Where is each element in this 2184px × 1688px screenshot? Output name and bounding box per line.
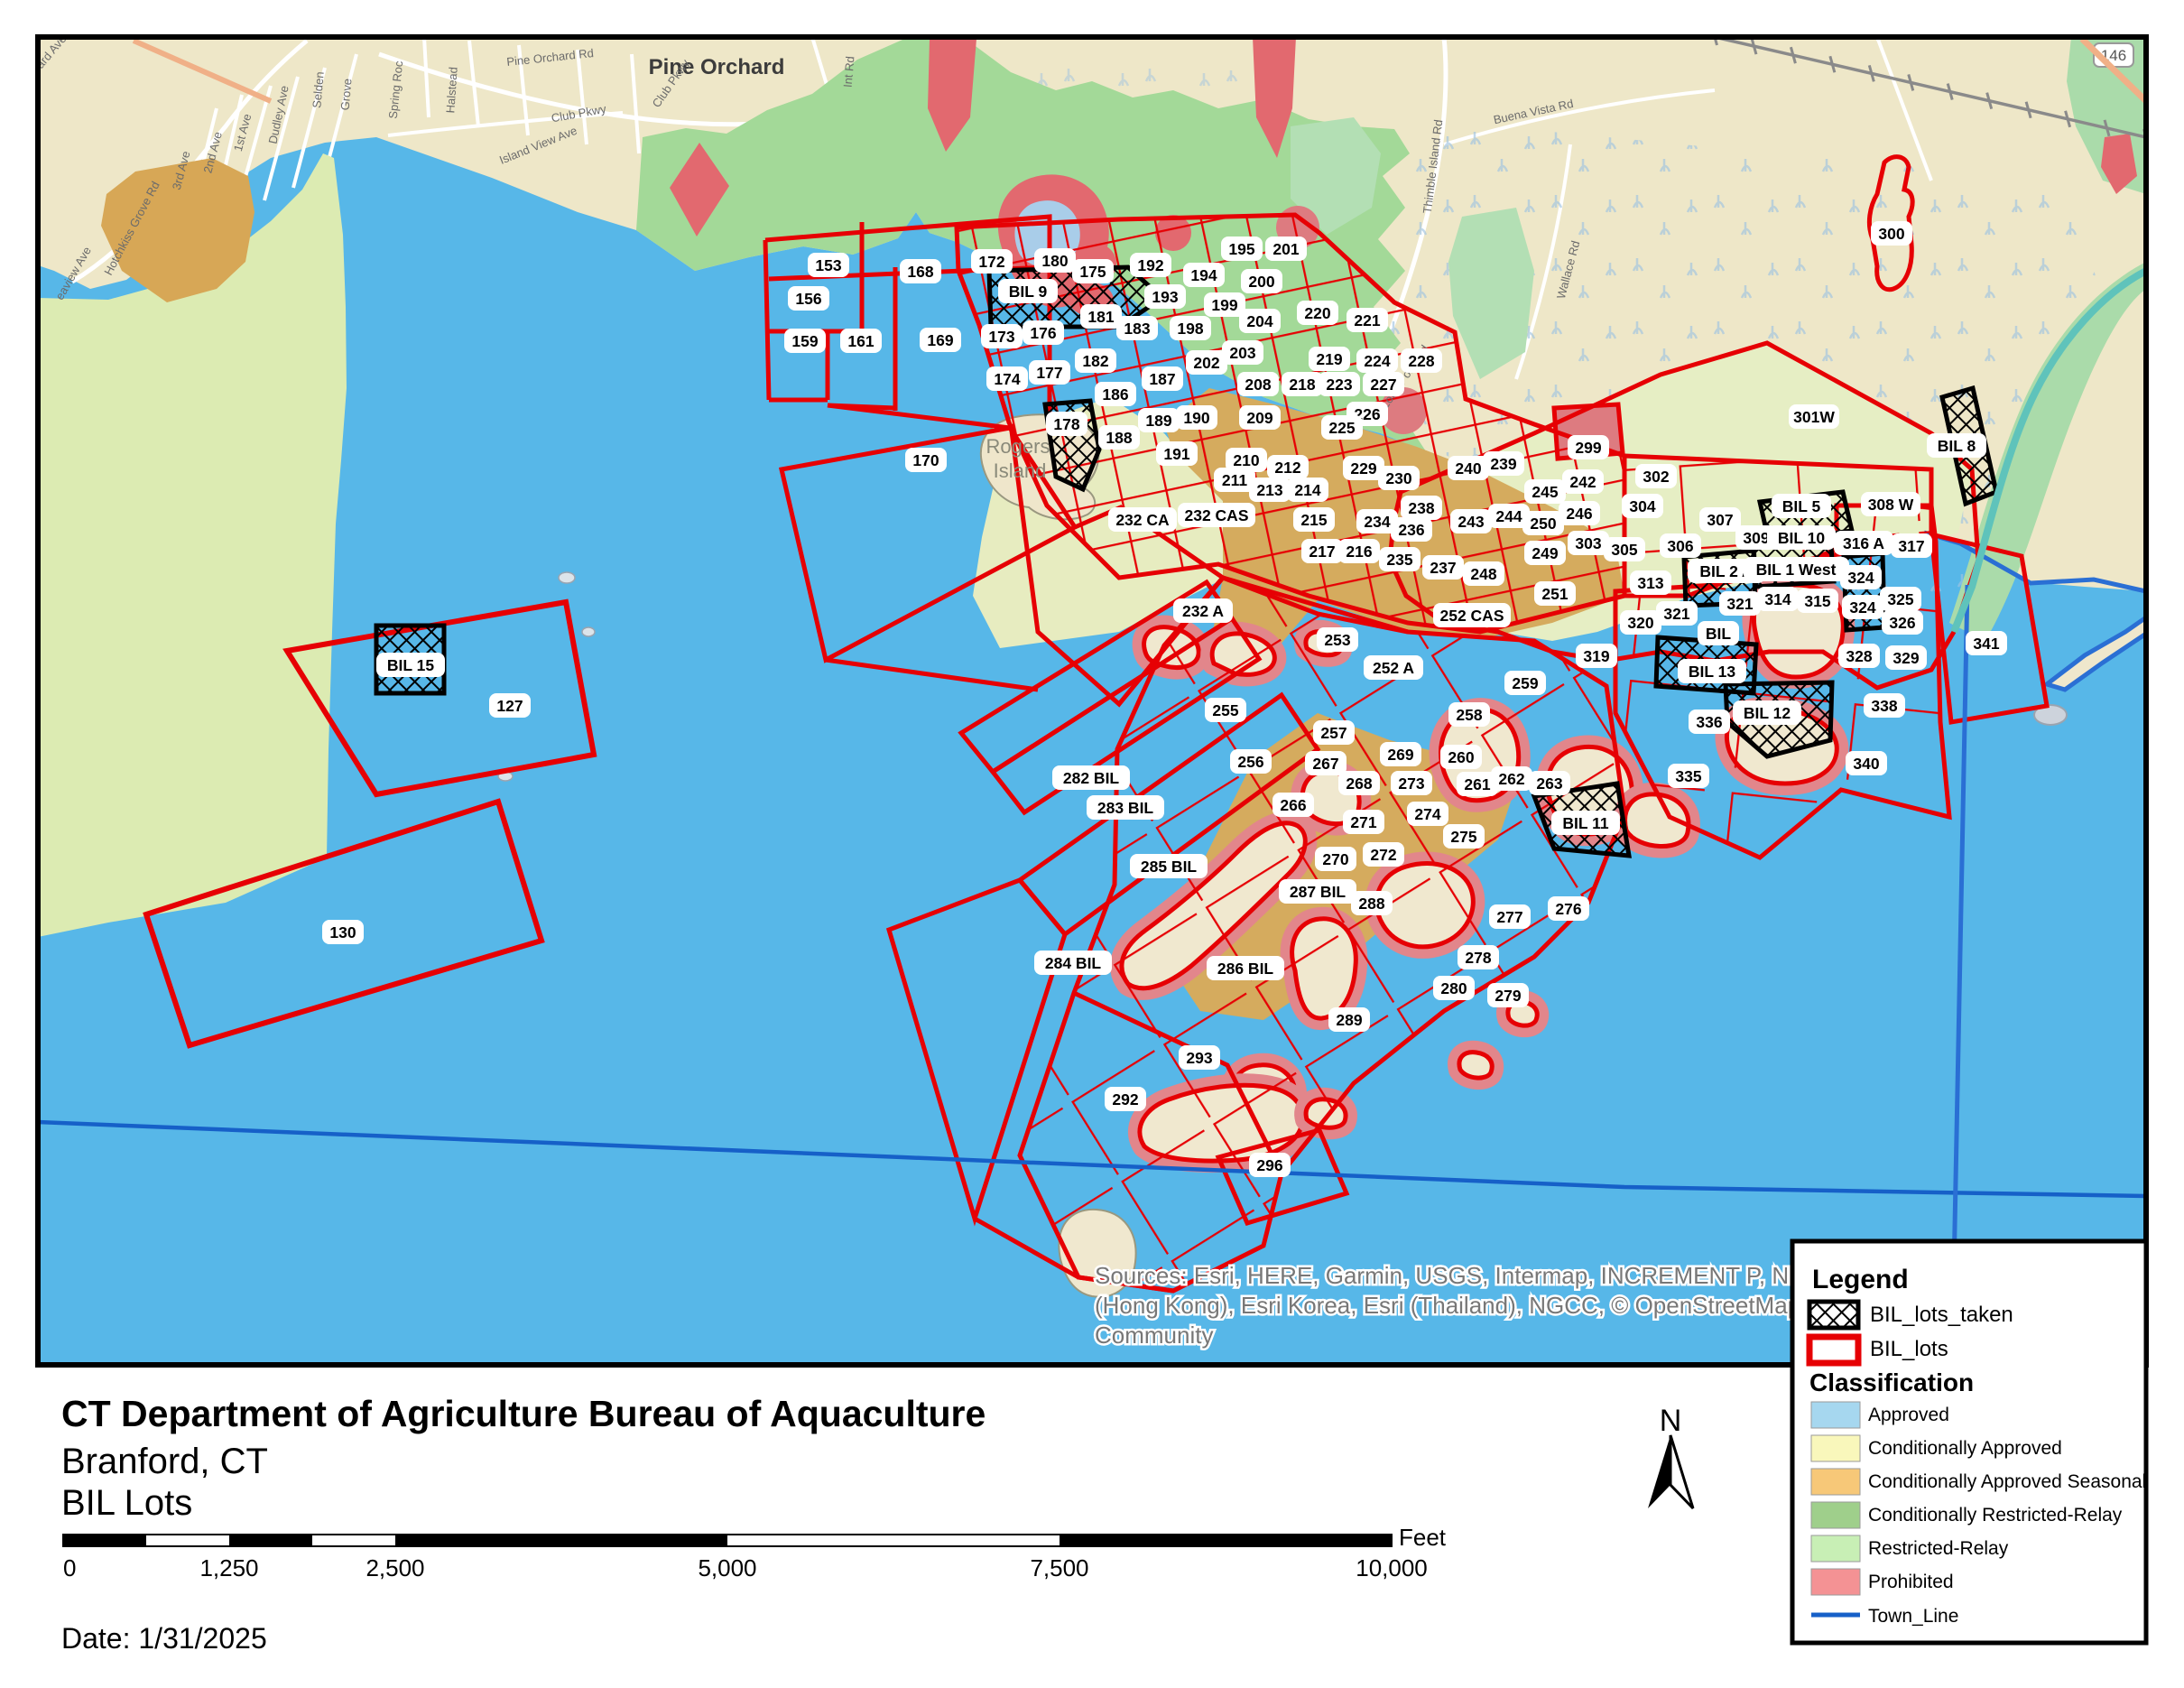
svg-text:279: 279	[1495, 987, 1521, 1005]
svg-text:Community: Community	[1095, 1322, 1213, 1349]
svg-text:256: 256	[1237, 753, 1263, 771]
svg-text:(Hong Kong), Esri Korea, Esri: (Hong Kong), Esri Korea, Esri (Thailand)…	[1095, 1292, 1845, 1319]
svg-text:BIL 1 West: BIL 1 West	[1756, 561, 1837, 579]
svg-text:219: 219	[1316, 350, 1342, 368]
svg-text:201: 201	[1272, 240, 1299, 258]
svg-text:188: 188	[1106, 429, 1132, 447]
svg-text:315: 315	[1804, 592, 1830, 610]
svg-text:313: 313	[1637, 574, 1663, 592]
svg-text:293: 293	[1186, 1049, 1212, 1067]
svg-text:341: 341	[1973, 635, 1999, 653]
svg-text:253: 253	[1324, 631, 1350, 649]
svg-text:325: 325	[1887, 590, 1913, 608]
svg-text:221: 221	[1354, 311, 1380, 329]
svg-text:268: 268	[1346, 774, 1372, 793]
svg-text:187: 187	[1149, 370, 1175, 388]
svg-text:Conditionally Approved: Conditionally Approved	[1868, 1438, 2062, 1459]
svg-text:285 BIL: 285 BIL	[1141, 858, 1198, 876]
svg-text:224: 224	[1364, 352, 1390, 370]
svg-text:216: 216	[1346, 543, 1372, 561]
svg-text:274: 274	[1414, 805, 1440, 823]
svg-text:243: 243	[1458, 513, 1484, 531]
svg-text:195: 195	[1228, 240, 1254, 258]
svg-text:303: 303	[1575, 534, 1601, 552]
svg-text:317: 317	[1898, 537, 1924, 555]
svg-text:299: 299	[1575, 439, 1601, 457]
svg-text:192: 192	[1137, 256, 1163, 274]
svg-text:Town_Line: Town_Line	[1868, 1606, 1958, 1627]
svg-text:BIL_lots: BIL_lots	[1870, 1337, 1948, 1361]
svg-text:305: 305	[1611, 541, 1637, 559]
svg-text:213: 213	[1256, 481, 1282, 499]
svg-text:250: 250	[1530, 515, 1556, 533]
svg-text:251: 251	[1541, 585, 1568, 603]
svg-text:296: 296	[1256, 1156, 1282, 1174]
svg-text:BIL 8: BIL 8	[1938, 437, 1976, 455]
svg-text:289: 289	[1336, 1011, 1362, 1029]
svg-text:304: 304	[1629, 497, 1655, 515]
svg-text:324: 324	[1847, 569, 1874, 587]
svg-text:316 A: 316 A	[1843, 534, 1884, 552]
svg-text:199: 199	[1211, 296, 1237, 314]
svg-text:288: 288	[1358, 895, 1384, 913]
svg-text:BIL_lots_taken: BIL_lots_taken	[1870, 1303, 2013, 1327]
svg-text:BIL: BIL	[1706, 625, 1732, 643]
svg-text:Feet: Feet	[1399, 1524, 1447, 1551]
svg-text:212: 212	[1274, 459, 1300, 477]
svg-text:200: 200	[1248, 273, 1274, 291]
svg-text:181: 181	[1087, 308, 1114, 326]
svg-text:232 CA: 232 CA	[1115, 511, 1170, 529]
svg-text:228: 228	[1408, 352, 1434, 370]
svg-text:232 A: 232 A	[1182, 602, 1224, 620]
svg-text:N: N	[1660, 1404, 1682, 1438]
svg-text:245: 245	[1532, 483, 1558, 501]
svg-text:194: 194	[1190, 266, 1217, 284]
svg-text:159: 159	[791, 332, 818, 350]
svg-text:220: 220	[1304, 304, 1330, 322]
svg-text:329: 329	[1892, 649, 1919, 667]
svg-text:300: 300	[1878, 225, 1904, 243]
svg-text:252 CAS: 252 CAS	[1439, 607, 1504, 625]
svg-text:Conditionally Approved Seasona: Conditionally Approved Seasonal	[1868, 1471, 2146, 1492]
svg-text:CT Department of Agriculture B: CT Department of Agriculture Bureau of A…	[61, 1393, 986, 1434]
svg-text:238: 238	[1408, 499, 1434, 517]
svg-text:276: 276	[1555, 900, 1581, 918]
svg-text:153: 153	[815, 256, 841, 274]
svg-text:183: 183	[1124, 320, 1150, 338]
svg-text:1,250: 1,250	[199, 1554, 258, 1581]
svg-text:Conditionally Restricted-Relay: Conditionally Restricted-Relay	[1868, 1505, 2123, 1526]
svg-text:5,000: 5,000	[698, 1554, 756, 1581]
svg-text:282 BIL: 282 BIL	[1063, 769, 1120, 787]
svg-text:287 BIL: 287 BIL	[1290, 883, 1346, 901]
svg-text:Int Rd: Int Rd	[841, 56, 857, 88]
svg-text:326: 326	[1889, 614, 1915, 632]
svg-text:BIL 11: BIL 11	[1562, 814, 1609, 832]
svg-text:130: 130	[329, 923, 356, 941]
svg-text:Restricted-Relay: Restricted-Relay	[1868, 1538, 2009, 1559]
svg-text:232 CAS: 232 CAS	[1184, 506, 1248, 524]
svg-text:320: 320	[1627, 614, 1653, 632]
svg-text:217: 217	[1309, 543, 1335, 561]
svg-text:BIL 9: BIL 9	[1009, 283, 1048, 301]
svg-text:239: 239	[1490, 455, 1516, 473]
svg-text:208: 208	[1245, 376, 1271, 394]
svg-text:176: 176	[1030, 324, 1056, 342]
svg-text:306: 306	[1667, 537, 1693, 555]
svg-text:Legend: Legend	[1812, 1265, 1909, 1294]
svg-text:258: 258	[1456, 706, 1482, 724]
svg-text:340: 340	[1853, 755, 1879, 773]
svg-text:0: 0	[63, 1554, 76, 1581]
svg-text:190: 190	[1183, 409, 1209, 427]
svg-text:259: 259	[1512, 674, 1538, 692]
svg-text:189: 189	[1145, 412, 1171, 430]
svg-text:263: 263	[1536, 774, 1562, 793]
svg-text:307: 307	[1707, 511, 1733, 529]
svg-text:266: 266	[1280, 796, 1306, 814]
svg-text:169: 169	[927, 331, 953, 349]
svg-text:203: 203	[1229, 344, 1255, 362]
svg-text:210: 210	[1233, 451, 1259, 469]
svg-text:Prohibited: Prohibited	[1868, 1572, 1954, 1592]
svg-text:240: 240	[1455, 459, 1481, 478]
svg-text:284 BIL: 284 BIL	[1045, 954, 1102, 972]
svg-text:204: 204	[1246, 312, 1272, 330]
svg-text:242: 242	[1569, 473, 1596, 491]
svg-text:283 BIL: 283 BIL	[1097, 799, 1154, 817]
svg-text:225: 225	[1328, 419, 1355, 437]
svg-text:161: 161	[847, 332, 874, 350]
svg-text:336: 336	[1696, 713, 1722, 731]
svg-text:Date: 1/31/2025: Date: 1/31/2025	[61, 1622, 267, 1655]
svg-text:246: 246	[1566, 505, 1592, 523]
svg-text:261: 261	[1464, 775, 1490, 793]
svg-text:244: 244	[1495, 507, 1522, 525]
svg-text:Classification: Classification	[1809, 1368, 1974, 1396]
svg-text:328: 328	[1846, 647, 1872, 665]
svg-text:319: 319	[1583, 647, 1609, 665]
svg-text:BIL 10: BIL 10	[1778, 529, 1825, 547]
svg-text:Rogers: Rogers	[986, 435, 1050, 458]
svg-text:BIL Lots: BIL Lots	[61, 1483, 192, 1523]
svg-text:262: 262	[1498, 770, 1524, 788]
svg-text:174: 174	[994, 370, 1020, 388]
svg-text:270: 270	[1322, 850, 1348, 868]
svg-text:273: 273	[1398, 774, 1424, 793]
svg-text:292: 292	[1112, 1090, 1138, 1108]
svg-text:218: 218	[1289, 376, 1315, 394]
svg-text:BIL 5: BIL 5	[1782, 497, 1821, 515]
svg-text:223: 223	[1326, 376, 1352, 394]
svg-text:271: 271	[1350, 813, 1376, 831]
svg-text:7,500: 7,500	[1030, 1554, 1088, 1581]
svg-text:235: 235	[1386, 551, 1412, 569]
svg-text:202: 202	[1193, 354, 1219, 372]
svg-text:127: 127	[496, 697, 523, 715]
svg-text:286 BIL: 286 BIL	[1217, 960, 1274, 978]
svg-text:314: 314	[1764, 590, 1791, 608]
svg-text:168: 168	[907, 263, 933, 281]
svg-text:170: 170	[912, 451, 939, 469]
svg-text:335: 335	[1675, 767, 1701, 785]
svg-text:172: 172	[978, 253, 1004, 271]
svg-text:229: 229	[1350, 459, 1376, 478]
svg-text:10,000: 10,000	[1356, 1554, 1428, 1581]
svg-text:227: 227	[1370, 376, 1396, 394]
svg-text:175: 175	[1079, 263, 1106, 281]
svg-text:269: 269	[1387, 746, 1413, 764]
svg-text:BIL 13: BIL 13	[1689, 663, 1735, 681]
svg-text:272: 272	[1370, 846, 1396, 864]
svg-text:309: 309	[1743, 529, 1769, 547]
svg-text:186: 186	[1102, 385, 1128, 403]
svg-text:278: 278	[1465, 949, 1491, 967]
svg-text:214: 214	[1294, 481, 1320, 499]
svg-text:191: 191	[1163, 445, 1189, 463]
svg-text:211: 211	[1222, 471, 1247, 489]
svg-text:BIL 12: BIL 12	[1744, 704, 1791, 722]
svg-text:193: 193	[1152, 288, 1178, 306]
svg-text:198: 198	[1177, 320, 1203, 338]
svg-text:280: 280	[1440, 979, 1467, 997]
svg-text:321: 321	[1663, 605, 1689, 623]
svg-text:230: 230	[1385, 469, 1411, 487]
svg-text:209: 209	[1246, 409, 1272, 427]
svg-text:260: 260	[1448, 748, 1474, 766]
svg-text:182: 182	[1082, 352, 1108, 370]
svg-text:248: 248	[1470, 565, 1496, 583]
svg-text:255: 255	[1212, 701, 1238, 719]
svg-text:338: 338	[1871, 697, 1897, 715]
svg-text:252 A: 252 A	[1373, 659, 1414, 677]
svg-text:302: 302	[1643, 468, 1669, 486]
svg-text:Grove: Grove	[338, 78, 355, 111]
svg-text:275: 275	[1450, 828, 1476, 846]
svg-text:324: 324	[1849, 598, 1875, 617]
svg-text:Island: Island	[994, 459, 1047, 482]
svg-text:178: 178	[1053, 415, 1079, 433]
svg-text:177: 177	[1036, 364, 1062, 382]
svg-text:180: 180	[1041, 252, 1068, 270]
svg-text:308 W: 308 W	[1868, 496, 1914, 514]
svg-text:173: 173	[988, 328, 1014, 346]
svg-text:267: 267	[1312, 755, 1338, 773]
svg-text:234: 234	[1364, 513, 1390, 531]
svg-text:236: 236	[1398, 521, 1424, 539]
svg-text:249: 249	[1532, 544, 1558, 562]
svg-text:Branford, CT: Branford, CT	[61, 1442, 268, 1481]
svg-text:Approved: Approved	[1868, 1405, 1949, 1425]
svg-text:215: 215	[1300, 511, 1327, 529]
svg-text:Sources: Esri, HERE, Garmin, U: Sources: Esri, HERE, Garmin, USGS, Inter…	[1095, 1262, 1855, 1289]
svg-text:2,500: 2,500	[366, 1554, 424, 1581]
svg-text:237: 237	[1430, 559, 1456, 577]
svg-text:321: 321	[1726, 595, 1753, 613]
svg-text:BIL 15: BIL 15	[387, 656, 434, 674]
svg-text:277: 277	[1496, 908, 1522, 926]
svg-text:301W: 301W	[1793, 408, 1835, 426]
svg-text:257: 257	[1320, 724, 1346, 742]
svg-text:156: 156	[795, 290, 821, 308]
